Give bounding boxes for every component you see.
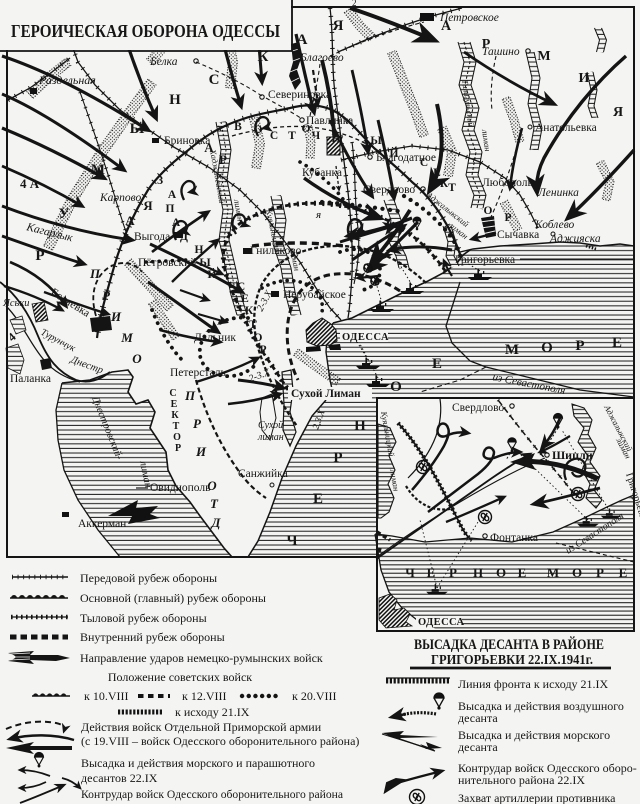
svg-text:Пётровский: Пётровский [138, 257, 196, 269]
svg-text:О: О [484, 205, 493, 217]
svg-text:Д: Д [211, 515, 222, 530]
svg-text:2: 2 [352, 0, 357, 8]
svg-text:к исходу 21.IX: к исходу 21.IX [175, 705, 250, 719]
svg-text:М: М [120, 330, 133, 345]
svg-text:Сычавка: Сычавка [497, 229, 539, 241]
svg-text:ГРИГОРЬЕВКИ 22.IX.1941г.: ГРИГОРЬЕВКИ 22.IX.1941г. [431, 652, 593, 667]
svg-text:Ч: Ч [286, 533, 297, 549]
svg-text:О: О [254, 332, 263, 344]
svg-text:4 А: 4 А [20, 176, 40, 191]
svg-text:Д: Д [180, 231, 188, 243]
svg-text:ВЫСАДКА ДЕСАНТА В РАЙОНЕ: ВЫСАДКА ДЕСАНТА В РАЙОНЕ [414, 636, 604, 653]
svg-text:Н: Н [332, 133, 341, 145]
svg-text:В: В [234, 121, 242, 133]
svg-text:(с 19.VIII – войск Одесского о: (с 19.VIII – войск Одесского оборонитель… [81, 734, 359, 748]
svg-text:десанта: десанта [458, 740, 498, 754]
svg-text:Ч: Ч [312, 130, 321, 142]
svg-text:И: И [110, 309, 122, 324]
svg-text:Я: Я [143, 198, 153, 213]
svg-text:Направление ударов немецко-р: Направление ударов немецко-румынских вой… [80, 651, 323, 665]
svg-text:Н: Н [195, 244, 204, 256]
svg-text:Захват артиллерии противника: Захват артиллерии противника [458, 791, 616, 804]
svg-text:С: С [420, 157, 428, 169]
svg-text:Я: Я [613, 105, 623, 120]
svg-text:Т: Т [249, 319, 257, 331]
svg-text:Р: Р [449, 565, 457, 580]
svg-text:Р: Р [193, 416, 202, 431]
svg-text:Р: Р [259, 344, 266, 356]
svg-text:десанта: десанта [458, 711, 498, 725]
svg-text:С: С [270, 130, 278, 142]
svg-text:С: С [237, 281, 245, 293]
svg-text:Т: Т [210, 496, 219, 511]
svg-text:Петерсталь: Петерсталь [170, 367, 226, 379]
svg-text:Т: Т [448, 182, 456, 194]
svg-text:О: О [541, 340, 553, 356]
svg-text:Е: Е [241, 293, 249, 305]
svg-text:Севериновка: Севериновка [268, 89, 331, 101]
svg-text:З: З [157, 175, 163, 187]
svg-text:Аджияска: Аджияска [549, 233, 601, 245]
svg-text:Нерубайское: Нерубайское [283, 289, 346, 301]
svg-text:О: О [254, 124, 263, 136]
svg-text:Ленинка: Ленинка [537, 187, 579, 199]
svg-text:Аккерман: Аккерман [78, 518, 126, 530]
svg-text:Н: Н [354, 418, 366, 434]
svg-text:Действия войск Отдельной Примо: Действия войск Отдельной Приморской арми… [81, 720, 322, 734]
svg-text:Коблево: Коблево [534, 219, 575, 231]
svg-text:Ы: Ы [130, 121, 145, 137]
svg-text:Е: Е [432, 356, 442, 372]
svg-text:Р: Р [102, 288, 111, 303]
svg-text:К: К [171, 410, 179, 421]
svg-text:Благоево: Благоево [299, 52, 344, 64]
svg-text:Линия фронта к исходу 21.I: Линия фронта к исходу 21.IX [458, 677, 609, 691]
svg-text:А: А [168, 189, 177, 201]
svg-text:Фонтанка: Фонтанка [490, 532, 538, 544]
svg-text:Григорьевка: Григорьевка [455, 254, 515, 266]
svg-text:Любополь: Любополь [482, 177, 533, 189]
svg-text:М: М [537, 49, 550, 64]
svg-text:Белка: Белка [149, 56, 178, 68]
svg-text:И: И [195, 444, 207, 459]
svg-text:Е: Е [427, 565, 436, 580]
svg-text:Санжийка: Санжийка [238, 468, 288, 480]
svg-text:ОДЕССА: ОДЕССА [418, 617, 465, 628]
svg-text:Передовой рубеж обороны: Передовой рубеж обороны [80, 571, 217, 585]
svg-text:О: О [496, 565, 506, 580]
svg-text:Р: Р [596, 565, 604, 580]
svg-text:Ы: Ы [370, 135, 382, 147]
svg-text:Р: Р [482, 37, 491, 52]
svg-text:Е: Е [313, 491, 323, 507]
svg-text:Я: Я [333, 18, 344, 34]
svg-text:Н: Н [473, 565, 483, 580]
svg-text:О: О [132, 351, 142, 366]
svg-text:ОДЕССА: ОДЕССА [342, 332, 389, 343]
svg-text:Основной (главный) рубеж об: Основной (главный) рубеж обороны [80, 591, 266, 605]
svg-text:Свердлово: Свердлово [363, 184, 415, 196]
svg-text:Е: Е [171, 399, 178, 410]
svg-text:Дальник: Дальник [194, 332, 236, 344]
svg-text:Е: Е [518, 565, 527, 580]
svg-text:Р: Р [333, 450, 342, 466]
svg-text:О: О [173, 432, 181, 443]
svg-text:к 10.VIII: к 10.VIII [84, 689, 128, 703]
svg-text:М: М [91, 162, 105, 178]
svg-text:С: С [169, 388, 176, 399]
svg-text:Й: Й [390, 146, 399, 160]
svg-text:О: О [572, 565, 582, 580]
svg-text:Т: Т [288, 130, 296, 142]
svg-text:Р: Р [504, 212, 511, 224]
svg-text:О: О [390, 379, 402, 395]
svg-text:Шицли: Шицли [552, 448, 593, 462]
svg-text:Высадка и действия морского: Высадка и действия морского и парашютног… [81, 756, 315, 770]
svg-text:Е: Е [612, 335, 622, 351]
svg-text:ГЕРОИЧЕСКАЯ ОБОРОНА ОДЕССЫ: ГЕРОИЧЕСКАЯ ОБОРОНА ОДЕССЫ [11, 21, 280, 41]
svg-text:Овидиополь: Овидиополь [150, 482, 210, 494]
svg-text:Р: Р [175, 443, 181, 454]
svg-text:К: К [245, 305, 254, 317]
svg-text:Павлинка: Павлинка [306, 115, 353, 127]
svg-text:Сухой: Сухой [258, 420, 283, 431]
svg-text:Контрудар войск Одесского обор: Контрудар войск Одесского оборонительног… [81, 788, 343, 801]
svg-text:О: О [207, 478, 217, 493]
svg-text:Карпово: Карпово [99, 192, 141, 204]
svg-text:Р: Р [575, 338, 584, 354]
svg-text:М: М [505, 342, 519, 358]
svg-text:Внутренний рубеж обороны: Внутренний рубеж обороны [80, 630, 225, 644]
svg-text:лиман: лиман [257, 432, 284, 443]
svg-text:С: С [209, 72, 220, 88]
svg-text:А: А [297, 32, 308, 48]
svg-text:Сухой Лиман: Сухой Лиман [291, 388, 361, 400]
svg-text:Ч: Ч [405, 565, 415, 580]
svg-text:П: П [184, 388, 196, 403]
svg-text:Анатольевка: Анатольевка [535, 122, 597, 134]
svg-text:нительного района 22.IX: нительного района 22.IX [458, 773, 585, 787]
svg-text:к 12.VIII: к 12.VIII [182, 689, 226, 703]
svg-text:А: А [172, 217, 181, 229]
svg-text:О: О [302, 123, 311, 135]
svg-text:к 20.VIII: к 20.VIII [292, 689, 336, 703]
svg-text:Положение советских войск: Положение советских войск [108, 670, 252, 684]
svg-text:П: П [166, 203, 175, 215]
svg-text:И: И [579, 71, 590, 86]
svg-text:Раздельная: Раздельная [38, 73, 96, 87]
svg-text:Т: Т [173, 421, 180, 432]
svg-text:М: М [547, 565, 559, 580]
svg-text:Паланка: Паланка [10, 373, 51, 385]
svg-text:Р: Р [35, 248, 44, 264]
svg-text:У: У [58, 206, 69, 222]
svg-text:П: П [89, 266, 101, 281]
svg-text:десантов 22.IX: десантов 22.IX [81, 771, 158, 785]
svg-text:А: А [441, 19, 452, 34]
svg-text:я: я [315, 209, 321, 221]
svg-text:Тыловой рубеж обороны: Тыловой рубеж обороны [80, 611, 207, 625]
svg-text:Свердлово: Свердлово [452, 402, 504, 414]
svg-text:Е: Е [619, 565, 628, 580]
svg-text:А: А [125, 213, 135, 228]
svg-text:Выгода: Выгода [134, 231, 170, 243]
svg-text:Н: Н [169, 92, 181, 108]
